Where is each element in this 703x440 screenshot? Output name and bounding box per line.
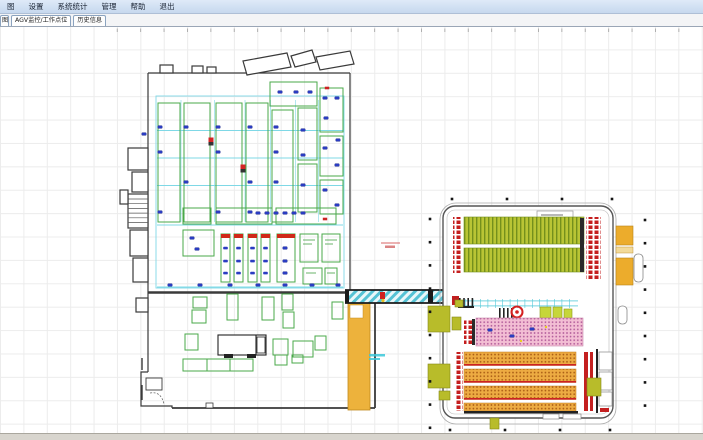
pillar-dot <box>611 198 614 201</box>
work-point-marker[interactable] <box>274 151 279 154</box>
pillar-dot <box>429 427 432 430</box>
slot-red-cap <box>261 234 270 238</box>
work-point-marker[interactable] <box>250 272 255 275</box>
ruler-tick <box>421 29 422 33</box>
ruler-tick <box>678 29 679 33</box>
pillar-dot <box>451 198 454 201</box>
work-point-marker[interactable] <box>184 181 189 184</box>
work-point-marker[interactable] <box>301 184 306 187</box>
truck <box>218 335 266 358</box>
work-point-marker[interactable] <box>216 126 221 129</box>
pillar-dot <box>506 198 509 201</box>
ruler-tick <box>398 29 399 33</box>
work-point-marker[interactable] <box>256 212 261 215</box>
work-point-marker[interactable] <box>216 211 221 214</box>
agv-marker[interactable] <box>241 165 246 170</box>
ruler-tick <box>585 29 586 33</box>
menu-item-help[interactable]: 帮助 <box>124 1 153 13</box>
work-point-marker[interactable] <box>256 284 261 287</box>
work-point-marker[interactable] <box>308 91 313 94</box>
path-tick <box>525 299 526 308</box>
work-point-marker[interactable] <box>336 284 341 287</box>
path-tick <box>495 299 496 308</box>
pillar-dot <box>449 429 452 432</box>
alert-point-marker[interactable] <box>323 218 327 221</box>
ruler-tick <box>515 29 516 33</box>
ruler-tick <box>561 29 562 33</box>
pillar-dot <box>644 265 647 268</box>
work-point-marker[interactable] <box>236 247 241 250</box>
work-point-marker[interactable] <box>223 247 228 250</box>
path-tick <box>539 299 540 308</box>
work-point-marker[interactable] <box>265 212 270 215</box>
pillar-dot <box>644 335 647 338</box>
pillar-dot <box>644 404 647 407</box>
pillar-dot <box>644 381 647 384</box>
ruler-tick <box>281 29 282 33</box>
slot-red-cap <box>248 234 257 238</box>
agv-marker[interactable] <box>209 138 214 143</box>
slot-red-cap <box>221 234 230 238</box>
work-point-marker[interactable] <box>195 248 200 251</box>
work-point-marker[interactable] <box>278 91 283 94</box>
pillar-dot <box>504 429 507 432</box>
horizontal-scrollbar[interactable] <box>0 433 703 440</box>
work-point-marker[interactable] <box>158 211 163 214</box>
work-point-marker[interactable] <box>142 133 147 136</box>
work-point-marker[interactable] <box>228 284 233 287</box>
work-point-marker[interactable] <box>324 117 329 120</box>
work-point-marker[interactable] <box>336 139 341 142</box>
tab-history[interactable]: 历史信息 <box>73 15 106 26</box>
pillar-dot <box>644 312 647 315</box>
work-point-marker[interactable] <box>323 189 328 192</box>
pillar-dot <box>429 380 432 383</box>
work-point-marker[interactable] <box>263 260 268 263</box>
work-point-marker[interactable] <box>274 212 279 215</box>
work-point-marker[interactable] <box>248 126 253 129</box>
agv-marker-body <box>209 142 214 146</box>
charging-slot <box>234 234 243 282</box>
work-point-marker[interactable] <box>283 272 288 275</box>
ruler-tick <box>304 29 305 33</box>
work-point-marker[interactable] <box>335 204 340 207</box>
agv-marker-body <box>241 169 246 173</box>
dock-blocks-amber <box>616 226 643 324</box>
ruler-tick <box>327 29 328 33</box>
work-point-marker[interactable] <box>190 237 195 240</box>
work-point-marker[interactable] <box>510 335 515 338</box>
menu-item-view[interactable]: 图 <box>0 1 22 13</box>
path-tick <box>510 299 511 308</box>
ruler-tick <box>187 29 188 33</box>
work-point-marker[interactable] <box>263 247 268 250</box>
door-symbol <box>634 254 643 282</box>
work-point-marker[interactable] <box>216 151 221 154</box>
charging-slot <box>248 234 257 282</box>
path-tick <box>502 299 503 308</box>
work-point-marker[interactable] <box>250 247 255 250</box>
pillar-dot <box>559 429 562 432</box>
ruler-tick <box>374 29 375 33</box>
work-point-marker[interactable] <box>184 126 189 129</box>
pillar-dot <box>429 218 432 221</box>
work-point-marker[interactable] <box>283 260 288 263</box>
work-point-marker[interactable] <box>223 260 228 263</box>
map-svg <box>0 0 703 440</box>
work-point-marker[interactable] <box>158 151 163 154</box>
work-point-marker[interactable] <box>323 97 328 100</box>
ruler-tick <box>632 29 633 33</box>
ruler-tick <box>444 29 445 33</box>
charging-slot <box>261 234 270 282</box>
work-point-marker[interactable] <box>301 154 306 157</box>
ruler-tick <box>117 29 118 33</box>
work-point-marker[interactable] <box>301 129 306 132</box>
path-tick <box>569 299 570 308</box>
connecting-corridor <box>345 290 443 303</box>
work-point-marker[interactable] <box>263 272 268 275</box>
ruler-tick <box>257 29 258 33</box>
rack-block-pink <box>464 318 583 346</box>
charging-slot <box>221 234 230 282</box>
ruler-tick <box>351 29 352 33</box>
work-point-marker[interactable] <box>283 247 288 250</box>
work-point-marker[interactable] <box>335 164 340 167</box>
rack-block-olive <box>453 217 601 279</box>
charging-slots <box>221 234 270 282</box>
pillar-dot <box>429 287 432 290</box>
ruler-tick <box>234 29 235 33</box>
slot-red-cap <box>234 234 243 238</box>
red-annotation <box>381 243 400 248</box>
menu-item-exit[interactable]: 退出 <box>153 1 182 13</box>
alert-point-marker[interactable] <box>325 87 329 90</box>
pillar-dot <box>644 219 647 222</box>
pillar-dot <box>561 198 564 201</box>
work-point-marker[interactable] <box>274 181 279 184</box>
menu-bar: 图 设置 系统统计 管理 帮助 退出 <box>0 0 703 14</box>
work-point-marker[interactable] <box>236 272 241 275</box>
path-tick <box>562 299 563 308</box>
ruler-tick <box>491 29 492 33</box>
work-point-marker[interactable] <box>283 212 288 215</box>
pillar-dot <box>429 241 432 244</box>
pillar-dot <box>429 403 432 406</box>
pillar-dot <box>429 311 432 314</box>
work-point-marker[interactable] <box>310 284 315 287</box>
work-point-marker[interactable] <box>294 91 299 94</box>
ruler-tick <box>538 29 539 33</box>
work-point-marker[interactable] <box>323 147 328 150</box>
work-point-marker[interactable] <box>223 272 228 275</box>
pillar-dot <box>429 357 432 360</box>
staging-strip <box>348 303 370 410</box>
pillar-dot <box>644 288 647 291</box>
door-symbol <box>618 306 627 324</box>
work-point-marker[interactable] <box>292 212 297 215</box>
path-tick <box>547 299 548 308</box>
work-point-marker[interactable] <box>488 329 493 332</box>
ruler-tick <box>608 29 609 33</box>
tab-map-clipped[interactable]: 图 <box>0 15 9 26</box>
menu-item-manage[interactable]: 管理 <box>95 1 124 13</box>
work-point-marker[interactable] <box>236 260 241 263</box>
work-point-marker[interactable] <box>248 211 253 214</box>
work-point-marker[interactable] <box>283 284 288 287</box>
menu-item-system-stats[interactable]: 系统统计 <box>51 1 95 13</box>
work-point-marker[interactable] <box>274 126 279 129</box>
pillar-dot <box>429 334 432 337</box>
ruler-tick <box>468 29 469 33</box>
path-tick <box>532 299 533 308</box>
pillar-dot <box>644 242 647 245</box>
corridor-agv-marker[interactable] <box>380 292 385 299</box>
pillar-dot <box>429 264 432 267</box>
ruler-ticks <box>117 29 680 33</box>
pillar-dot <box>644 358 647 361</box>
ruler-tick <box>655 29 656 33</box>
work-point-marker[interactable] <box>248 181 253 184</box>
work-point-marker[interactable] <box>335 97 340 100</box>
ruler-tick <box>210 29 211 33</box>
warehouse-building <box>428 203 643 429</box>
work-point-marker[interactable] <box>158 126 163 129</box>
ruler-tick <box>164 29 165 33</box>
menu-item-settings[interactable]: 设置 <box>22 1 51 13</box>
tab-agv-workpoints[interactable]: AGV监控/工作点位 <box>11 15 71 26</box>
work-point-marker[interactable] <box>250 260 255 263</box>
pillar-dot <box>609 429 612 432</box>
app-window: 图 设置 系统统计 管理 帮助 退出 图 AGV监控/工作点位 历史信息 <box>0 0 703 440</box>
lower-hall-storage <box>183 294 343 371</box>
work-point-marker[interactable] <box>168 284 173 287</box>
path-tick <box>488 299 489 308</box>
path-tick <box>554 299 555 308</box>
work-point-marker[interactable] <box>301 212 306 215</box>
path-tick <box>480 299 481 308</box>
work-point-marker[interactable] <box>530 328 535 331</box>
left-annex-rooms <box>120 148 164 404</box>
ruler-tick <box>140 29 141 33</box>
tab-bar: 图 AGV监控/工作点位 历史信息 <box>0 14 703 27</box>
work-point-marker[interactable] <box>198 284 203 287</box>
